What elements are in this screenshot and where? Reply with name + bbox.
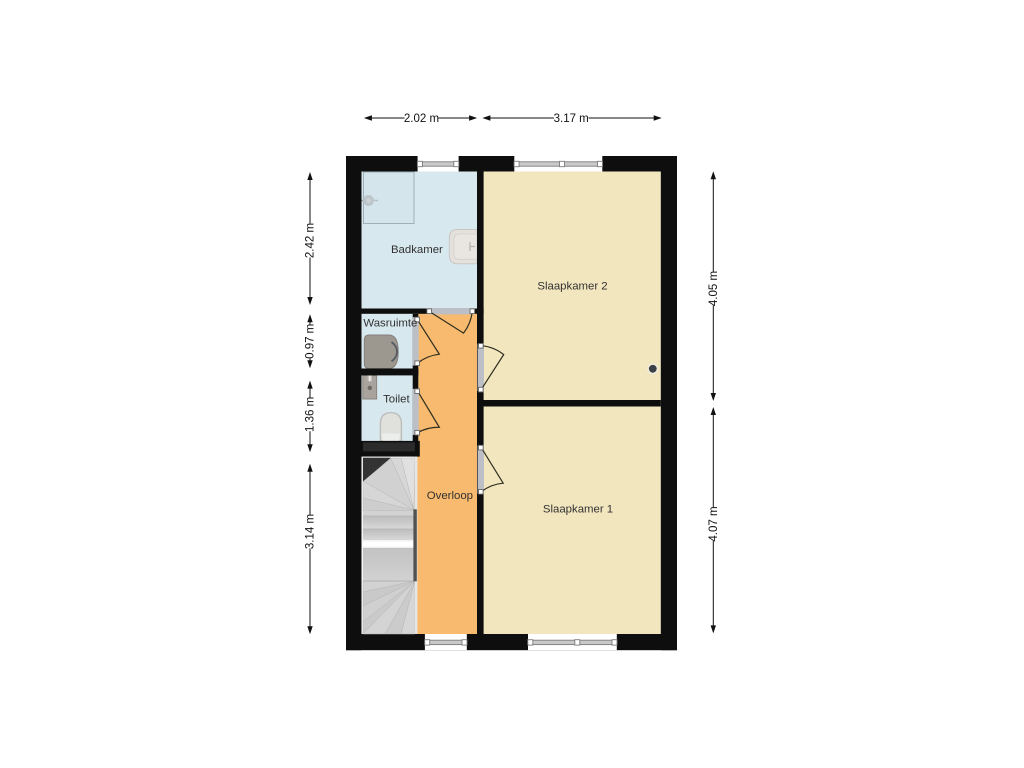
svg-text:0.97 m: 0.97 m (305, 324, 317, 359)
svg-text:1.36 m: 1.36 m (305, 397, 317, 432)
svg-text:Slaapkamer 1: Slaapkamer 1 (543, 504, 613, 516)
svg-text:4.07 m: 4.07 m (708, 506, 720, 541)
svg-text:Wasruimte: Wasruimte (363, 318, 417, 330)
svg-text:Slaapkamer 2: Slaapkamer 2 (537, 281, 607, 293)
svg-text:2.02 m: 2.02 m (404, 113, 439, 125)
svg-text:3.17 m: 3.17 m (554, 113, 589, 125)
svg-text:3.14 m: 3.14 m (305, 514, 317, 549)
svg-text:Toilet: Toilet (383, 393, 410, 405)
svg-text:Badkamer: Badkamer (391, 244, 443, 256)
svg-text:2.42 m: 2.42 m (305, 223, 317, 258)
svg-text:4.05 m: 4.05 m (708, 271, 720, 306)
svg-text:Overloop: Overloop (427, 490, 473, 502)
